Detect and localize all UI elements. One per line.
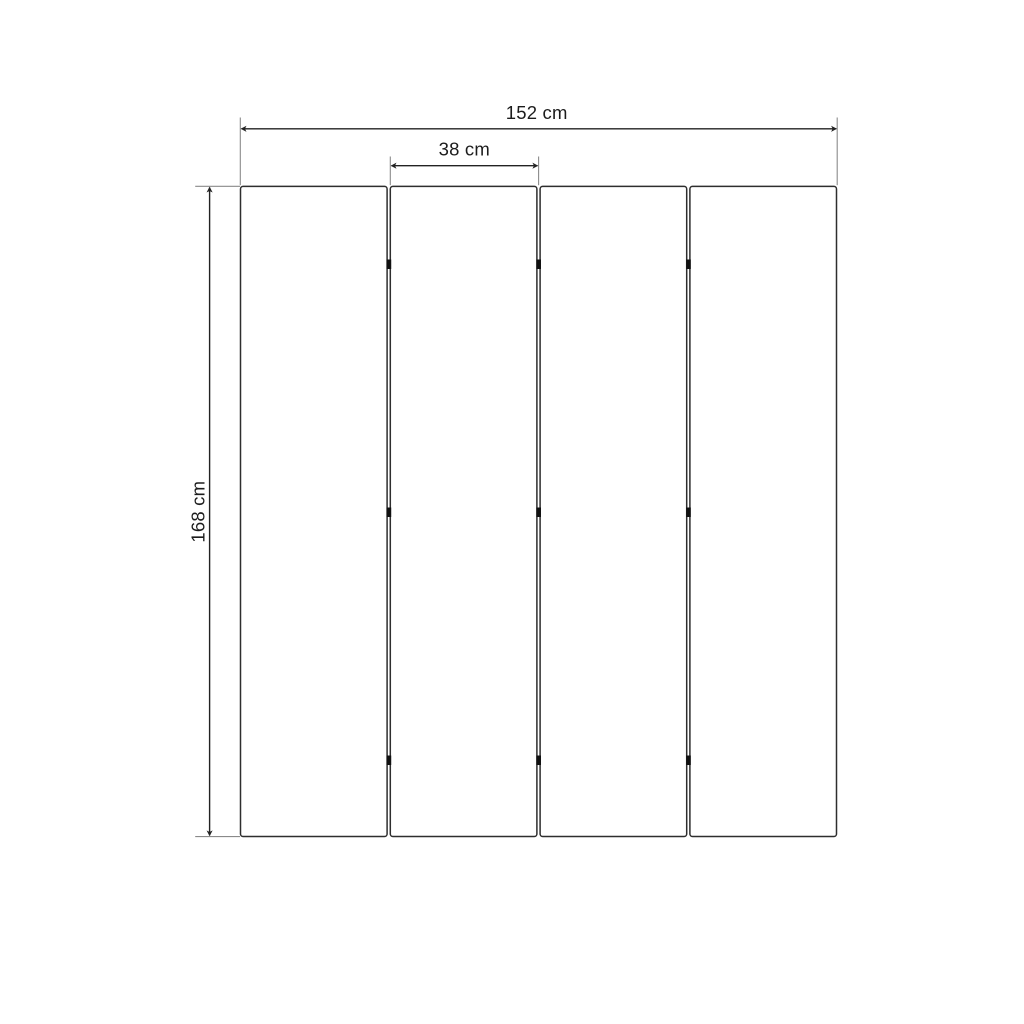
- svg-text:152 cm: 152 cm: [506, 102, 568, 123]
- svg-text:168 cm: 168 cm: [187, 481, 208, 543]
- svg-text:38 cm: 38 cm: [439, 139, 490, 160]
